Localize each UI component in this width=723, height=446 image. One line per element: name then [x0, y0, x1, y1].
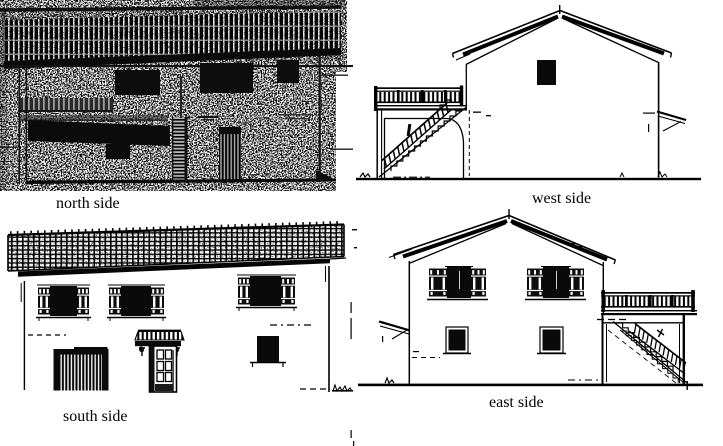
svg-text:east side: east side	[489, 394, 544, 411]
svg-text:west side: west side	[532, 190, 591, 207]
svg-text:south side: south side	[63, 408, 127, 425]
svg-text:north side: north side	[56, 195, 120, 212]
